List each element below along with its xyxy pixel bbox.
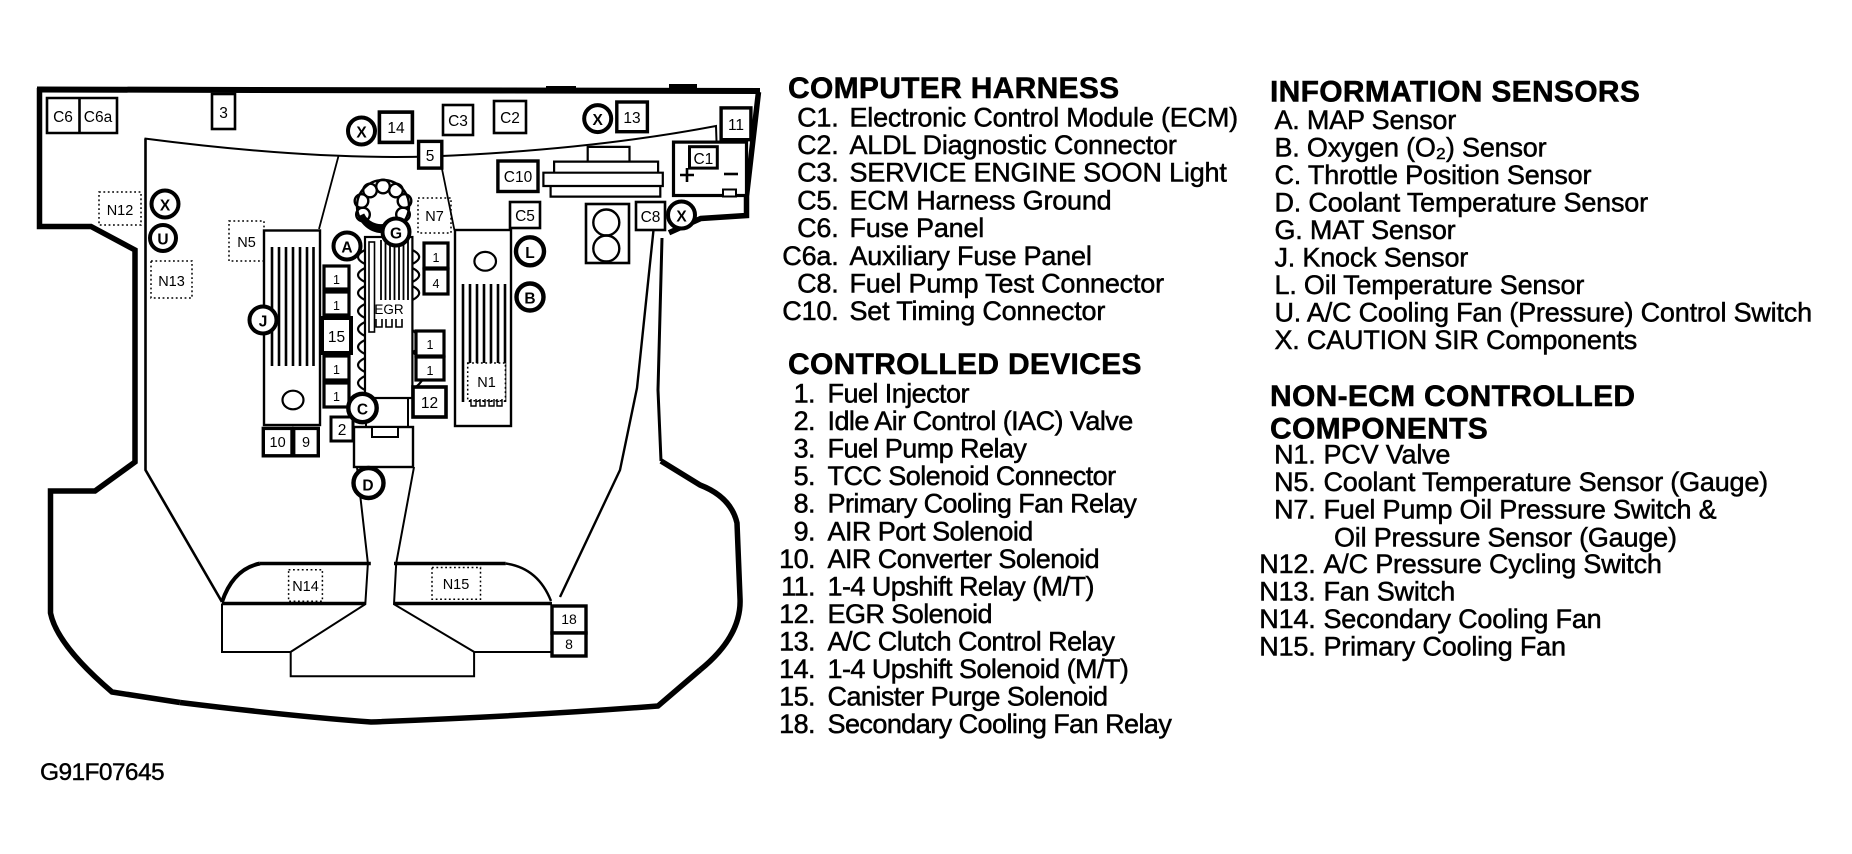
svg-text:N15: N15 [443,577,470,593]
svg-text:1: 1 [433,251,440,265]
svg-text:C1.: C1. [797,102,838,132]
svg-text:C5: C5 [515,208,535,225]
svg-text:N5: N5 [237,235,256,251]
svg-text:A: A [341,240,352,257]
svg-text:C1: C1 [693,151,713,168]
svg-text:18.: 18. [779,709,815,739]
svg-text:NON-ECM CONTROLLED: NON-ECM CONTROLLED [1270,380,1635,413]
svg-text:2: 2 [338,422,347,439]
svg-text:N12: N12 [107,203,134,219]
svg-text:8: 8 [565,636,573,652]
svg-text:N1.: N1. [1274,440,1315,470]
svg-text:X: X [356,125,367,142]
svg-text:B. Oxygen (O₂) Sensor: B. Oxygen (O₂) Sensor [1275,133,1547,163]
svg-text:C2.: C2. [797,130,838,160]
svg-text:1: 1 [427,364,434,378]
svg-text:3: 3 [219,105,228,122]
svg-text:A/C Clutch Control Relay: A/C Clutch Control Relay [828,627,1116,657]
svg-text:Coolant Temperature Sensor (Ga: Coolant Temperature Sensor (Gauge) [1324,467,1768,497]
svg-text:J: J [259,314,268,331]
svg-text:D: D [362,478,373,495]
svg-text:L: L [525,245,534,262]
svg-text:10: 10 [270,435,286,451]
svg-text:G91F07645: G91F07645 [40,759,164,786]
svg-text:N13: N13 [158,274,185,290]
svg-text:Fuel Injector: Fuel Injector [828,379,970,409]
svg-text:TCC Solenoid Connector: TCC Solenoid Connector [828,461,1117,491]
svg-text:C6: C6 [53,109,73,126]
svg-text:L. Oil Temperature Sensor: L. Oil Temperature Sensor [1275,270,1585,300]
svg-text:X. CAUTION SIR Components: X. CAUTION SIR Components [1275,325,1638,355]
svg-text:N14.: N14. [1259,604,1315,634]
svg-text:1-4 Upshift Relay (M/T): 1-4 Upshift Relay (M/T) [828,571,1094,601]
svg-text:Primary Cooling Fan: Primary Cooling Fan [1324,631,1566,661]
svg-text:G. MAT Sensor: G. MAT Sensor [1275,215,1456,245]
svg-text:8.: 8. [794,489,815,519]
svg-text:N1: N1 [477,375,496,391]
svg-text:U. A/C Cooling Fan (Pressure): U. A/C Cooling Fan (Pressure) Control Sw… [1275,298,1812,328]
svg-text:2.: 2. [794,406,815,436]
svg-text:C6a.: C6a. [782,241,838,271]
svg-text:N7: N7 [425,209,444,225]
svg-text:C8: C8 [641,209,661,226]
svg-text:EGR: EGR [374,302,404,317]
svg-text:C3.: C3. [797,158,838,188]
svg-text:EGR Solenoid: EGR Solenoid [828,599,993,629]
svg-text:5: 5 [426,148,435,165]
svg-text:Oil Pressure Sensor (Gauge): Oil Pressure Sensor (Gauge) [1334,523,1677,553]
svg-text:G: G [390,226,402,243]
svg-text:ECM Harness Ground: ECM Harness Ground [850,185,1112,215]
svg-text:1: 1 [333,273,340,287]
svg-text:1-4 Upshift Solenoid (M/T): 1-4 Upshift Solenoid (M/T) [828,654,1129,684]
svg-text:N13.: N13. [1259,577,1315,607]
svg-text:Fuse Panel: Fuse Panel [850,213,985,243]
svg-text:AIR Port Solenoid: AIR Port Solenoid [828,516,1033,546]
svg-text:U: U [157,232,168,249]
svg-text:Secondary Cooling Fan: Secondary Cooling Fan [1324,604,1602,634]
svg-text:Secondary Cooling Fan Relay: Secondary Cooling Fan Relay [828,709,1173,739]
svg-text:12: 12 [421,395,438,412]
svg-text:Electronic Control Module (ECM: Electronic Control Module (ECM) [850,102,1238,132]
svg-text:N14: N14 [292,579,319,595]
svg-text:3.: 3. [794,434,815,464]
svg-text:Idle Air Control (IAC) Valve: Idle Air Control (IAC) Valve [828,406,1133,436]
svg-text:N7.: N7. [1274,494,1315,524]
svg-text:C3: C3 [448,113,468,130]
svg-text:13.: 13. [779,627,815,657]
svg-text:SERVICE ENGINE SOON Light: SERVICE ENGINE SOON Light [850,158,1228,188]
svg-text:1.: 1. [794,379,815,409]
svg-text:Canister Purge Solenoid: Canister Purge Solenoid [828,682,1108,712]
svg-text:C8.: C8. [797,269,838,299]
svg-text:Set Timing Connector: Set Timing Connector [850,296,1106,326]
svg-text:1: 1 [333,390,340,404]
svg-text:Fan Switch: Fan Switch [1324,577,1456,607]
svg-text:13: 13 [623,110,640,127]
svg-text:N12.: N12. [1259,549,1315,579]
svg-text:X: X [160,198,171,215]
svg-text:9: 9 [302,435,310,451]
svg-text:C5.: C5. [797,185,838,215]
svg-text:Fuel Pump Oil Pressure Switch: Fuel Pump Oil Pressure Switch & [1324,494,1717,524]
svg-text:1: 1 [333,299,340,313]
svg-text:AIR Converter Solenoid: AIR Converter Solenoid [828,544,1100,574]
svg-text:Fuel Pump Relay: Fuel Pump Relay [828,434,1028,464]
svg-text:11: 11 [728,117,744,134]
svg-text:9.: 9. [794,516,815,546]
svg-text:C: C [357,402,368,419]
svg-text:CONTROLLED DEVICES: CONTROLLED DEVICES [788,348,1142,381]
svg-text:5.: 5. [794,461,815,491]
svg-text:14.: 14. [779,654,815,684]
svg-text:15: 15 [328,329,345,346]
svg-text:B: B [524,291,535,308]
svg-text:J. Knock Sensor: J. Knock Sensor [1275,243,1469,273]
svg-text:14: 14 [387,120,405,137]
svg-text:X: X [593,112,604,129]
svg-text:D. Coolant Temperature Sensor: D. Coolant Temperature Sensor [1275,188,1649,218]
svg-text:18: 18 [561,611,577,627]
svg-text:4: 4 [433,277,440,291]
svg-text:N15.: N15. [1259,631,1315,661]
svg-text:12.: 12. [779,599,815,629]
svg-text:C6.: C6. [797,213,838,243]
svg-text:ALDL Diagnostic Connector: ALDL Diagnostic Connector [850,130,1177,160]
svg-text:1: 1 [427,338,434,352]
svg-text:C6a: C6a [84,109,113,126]
svg-text:1: 1 [333,363,340,377]
svg-text:C. Throttle Position Sensor: C. Throttle Position Sensor [1275,160,1592,190]
svg-text:COMPUTER HARNESS: COMPUTER HARNESS [788,72,1120,105]
svg-text:A/C Pressure Cycling Switch: A/C Pressure Cycling Switch [1324,549,1662,579]
svg-text:A. MAP Sensor: A. MAP Sensor [1275,105,1457,135]
svg-text:11.: 11. [781,571,815,601]
svg-text:N5.: N5. [1274,467,1315,497]
svg-text:PCV Valve: PCV Valve [1324,440,1451,470]
svg-text:15.: 15. [779,682,815,712]
svg-text:C10.: C10. [782,296,838,326]
svg-text:Fuel Pump Test Connector: Fuel Pump Test Connector [850,269,1165,299]
svg-text:Auxiliary Fuse Panel: Auxiliary Fuse Panel [850,241,1092,271]
svg-text:INFORMATION SENSORS: INFORMATION SENSORS [1270,75,1640,108]
svg-text:X: X [676,209,687,226]
svg-text:Primary Cooling Fan Relay: Primary Cooling Fan Relay [828,489,1138,519]
svg-text:C10: C10 [504,169,533,186]
svg-text:C2: C2 [500,110,520,127]
svg-text:10.: 10. [779,544,815,574]
